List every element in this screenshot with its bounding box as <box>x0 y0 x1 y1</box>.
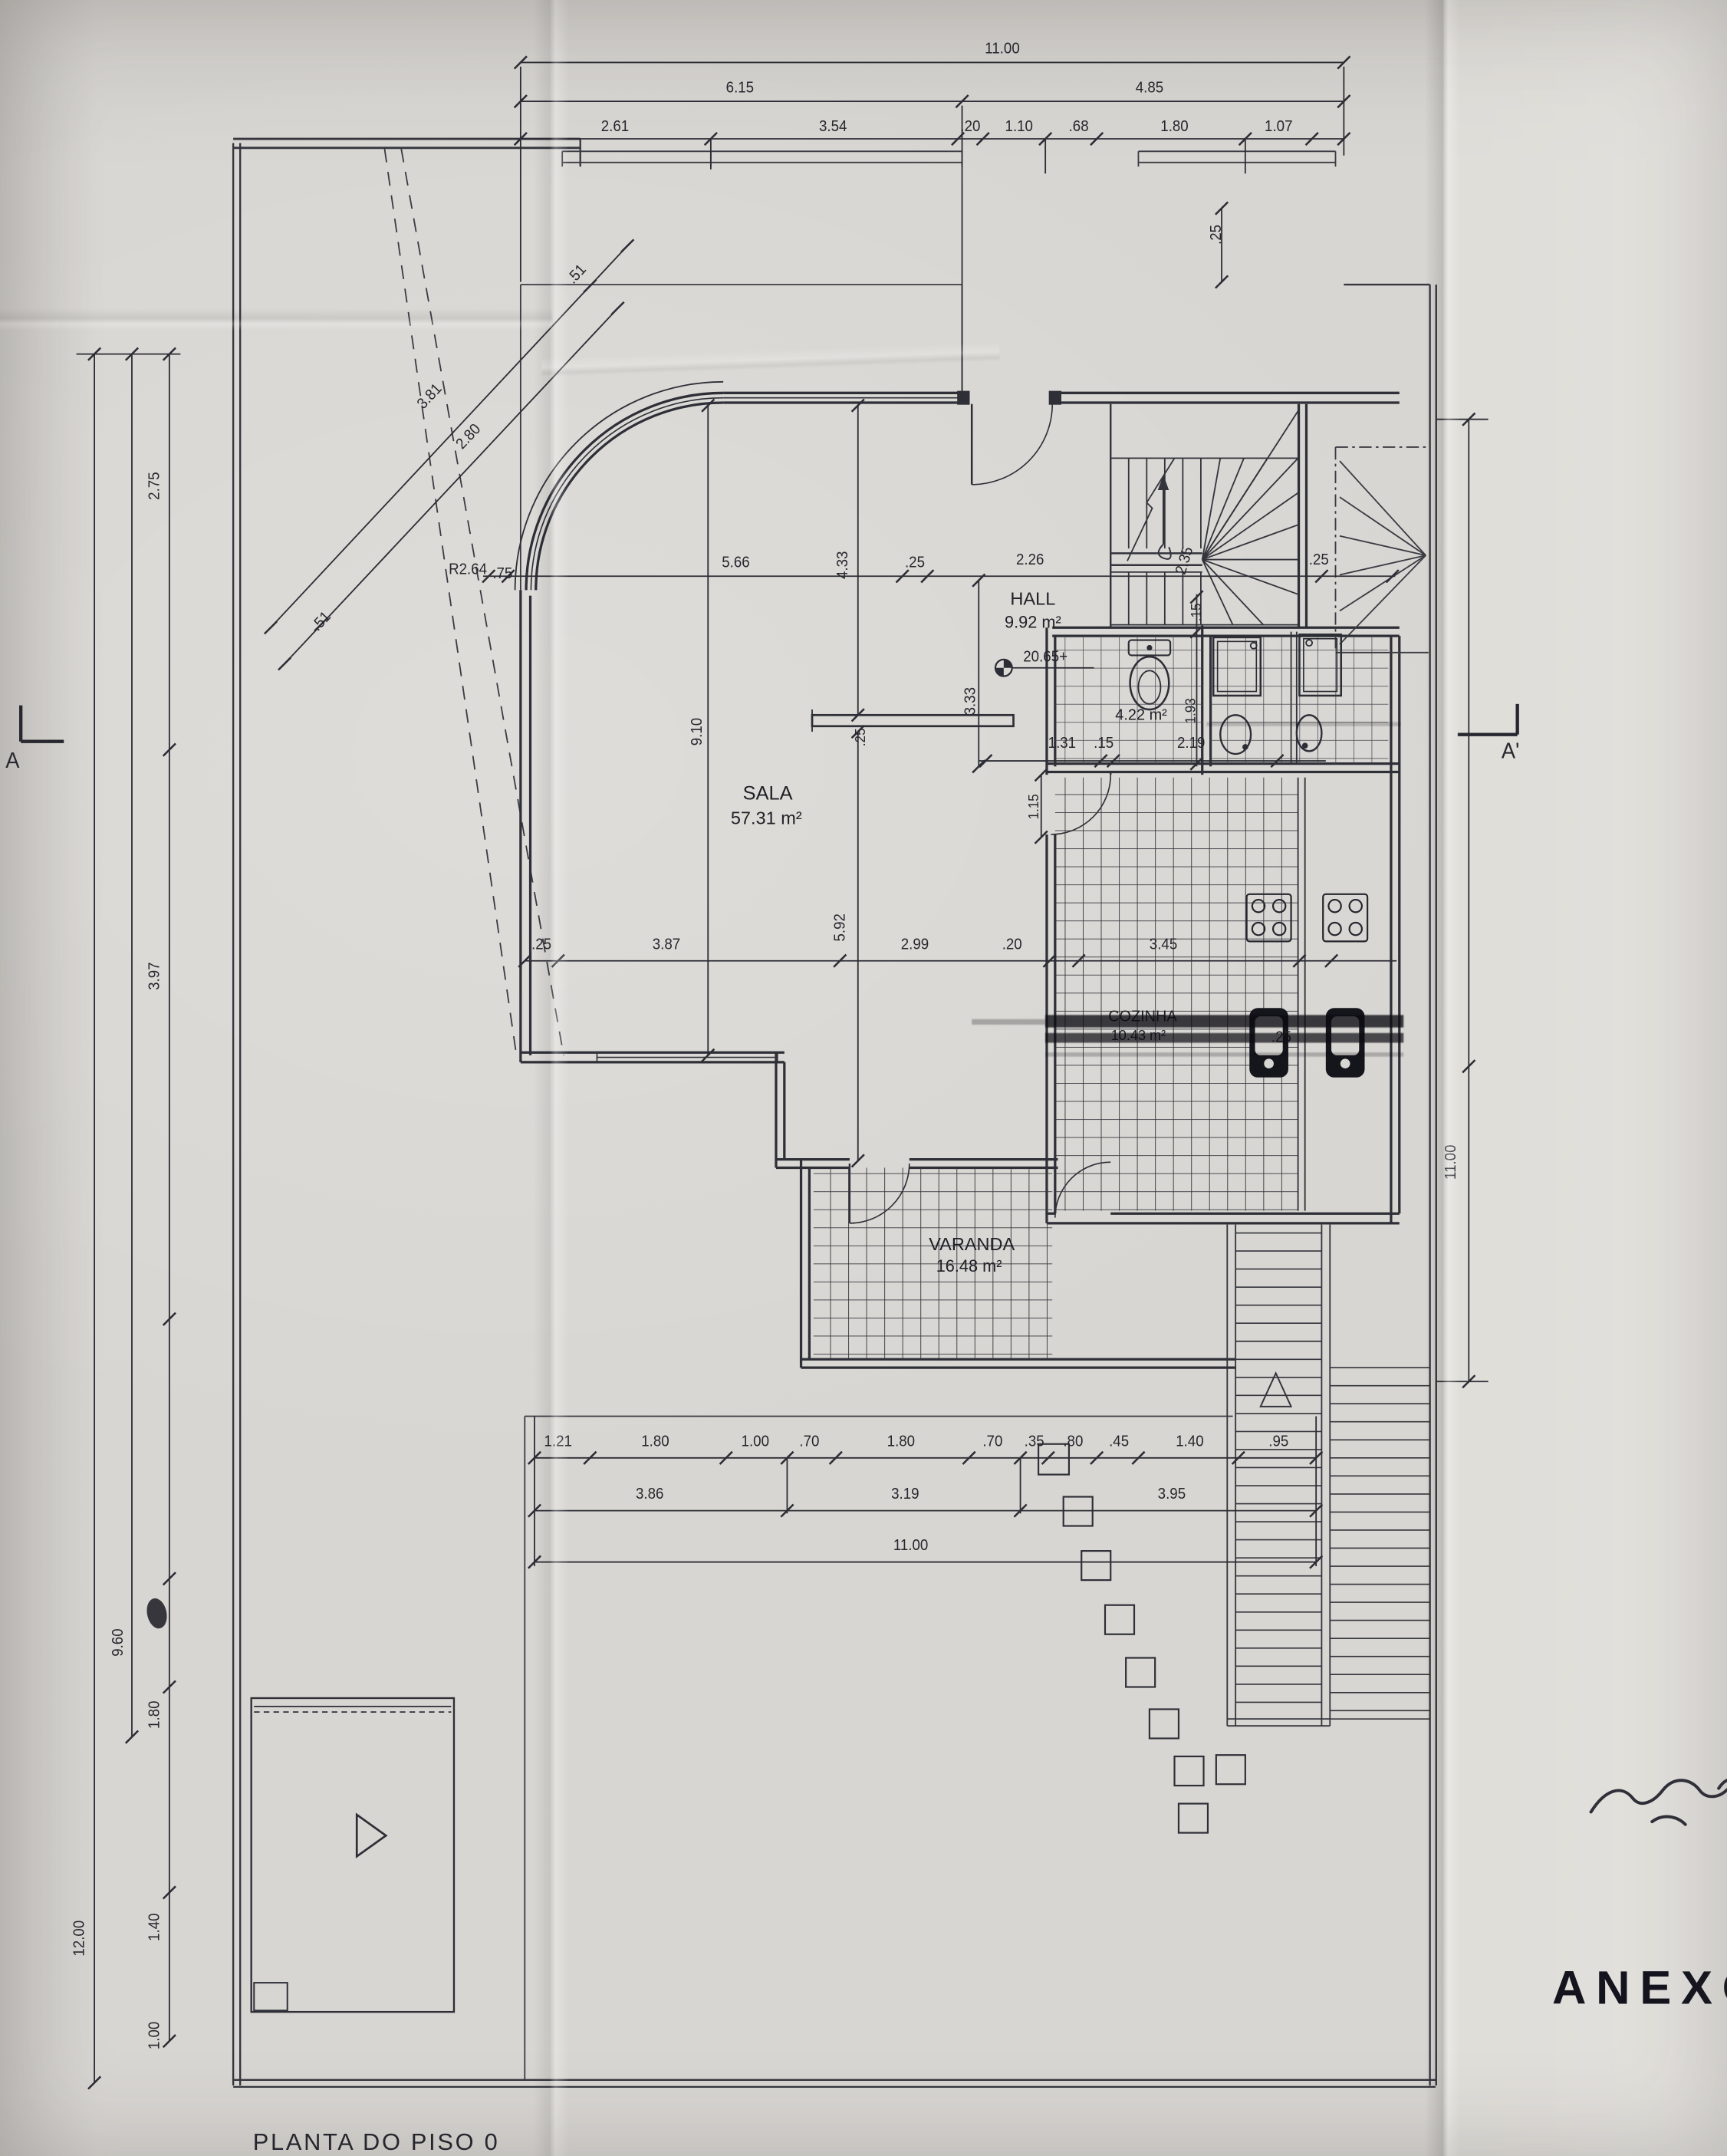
radius-label: R2.64 <box>449 563 487 578</box>
dim-label: 1.15 <box>1028 794 1042 819</box>
dim-label: 1.40 <box>148 1913 163 1940</box>
dim-label: 9.60 <box>112 1628 127 1656</box>
dim-label: 11.00 <box>1445 1144 1460 1179</box>
dim-label: .51 <box>310 610 334 635</box>
dim-label: 4.85 <box>1136 81 1163 97</box>
dim-label: 2.99 <box>901 938 929 953</box>
dim-label: 11.00 <box>893 1539 928 1555</box>
dim-label: .20 <box>1002 938 1022 953</box>
level-value: 20.65+ <box>1023 650 1067 666</box>
dim-label: 9.10 <box>691 718 706 746</box>
section-marker-a-prime: A' <box>1502 742 1519 764</box>
dim-label: 3.19 <box>891 1488 919 1503</box>
dim-label: 5.66 <box>722 556 749 571</box>
dim-label: .25 <box>531 938 551 953</box>
dim-label: .80 <box>1063 1435 1083 1450</box>
dim-label: 1.40 <box>1176 1435 1203 1450</box>
room-area-cozinha: 10.43 m² <box>1111 1030 1166 1044</box>
dim-label: .20 <box>960 120 980 136</box>
dim-label: 1.07 <box>1265 120 1292 136</box>
room-area-wc: 4.22 m² <box>1115 709 1167 724</box>
handwritten-anexo: ANEXO <box>1552 1965 1727 2013</box>
dim-label: 12.00 <box>73 1921 88 1957</box>
dim-label: 3.54 <box>819 120 847 136</box>
room-label-hall: HALL <box>1010 589 1055 607</box>
dim-label: 5.92 <box>834 913 849 941</box>
section-marker-a: A <box>5 751 19 773</box>
dim-label: .70 <box>799 1435 819 1450</box>
dim-label: .35 <box>1025 1435 1044 1450</box>
room-label-sala: SALA <box>743 783 793 802</box>
dim-label: .25 <box>855 728 869 746</box>
dim-label: 1.21 <box>544 1435 572 1450</box>
room-area-varanda: 16.48 m² <box>936 1258 1002 1275</box>
dim-label: 1.80 <box>887 1435 915 1450</box>
dim-label: 1.80 <box>148 1700 163 1728</box>
dim-label: .95 <box>1268 1435 1288 1450</box>
dim-label: .25 <box>905 556 925 571</box>
room-area-hall: 9.92 m² <box>1005 614 1061 630</box>
dim-label: 1.10 <box>1005 120 1033 136</box>
dim-label: 2.75 <box>148 472 163 499</box>
dim-label: 3.33 <box>964 687 979 715</box>
dim-label: 2.61 <box>601 120 629 136</box>
dim-label: 2.19 <box>1177 736 1205 752</box>
dim-label: .25 <box>1309 553 1329 568</box>
dim-label: 3.97 <box>148 962 163 989</box>
dim-label: .15 <box>1094 736 1114 752</box>
room-area-sala: 57.31 m² <box>731 808 802 827</box>
scanned-floor-plan-sheet: 11.006.154.852.613.54.201.10.681.801.071… <box>0 0 1727 2156</box>
dim-label: 2.26 <box>1016 553 1044 568</box>
dim-label: 11.00 <box>985 42 1019 58</box>
dim-label: .25 <box>1271 1031 1291 1046</box>
dim-label: 1.31 <box>1048 736 1076 752</box>
dim-label: .25 <box>1210 225 1225 245</box>
dim-label: 2.35 <box>1174 545 1197 577</box>
dim-label: 1.00 <box>148 2022 163 2049</box>
dim-label: 1.80 <box>641 1435 669 1450</box>
dim-label: .15 <box>1191 604 1205 622</box>
dim-label: 6.15 <box>726 81 754 97</box>
dim-label: .70 <box>982 1435 1002 1450</box>
dim-label: 3.86 <box>636 1488 663 1503</box>
dim-label: .45 <box>1109 1435 1129 1450</box>
dim-label: 3.95 <box>1158 1488 1186 1503</box>
dim-label: 1.93 <box>1186 698 1199 723</box>
dim-label: .75 <box>492 568 512 583</box>
dim-label: 4.33 <box>837 551 852 579</box>
dim-label: 1.80 <box>1160 120 1188 136</box>
dim-label: .51 <box>565 262 590 288</box>
dim-label: 3.87 <box>653 938 680 953</box>
dim-label: .68 <box>1069 120 1089 136</box>
dim-label: 3.45 <box>1150 938 1177 953</box>
text-labels-layer: 11.006.154.852.613.54.201.10.681.801.071… <box>0 0 1727 2156</box>
dim-label: 1.00 <box>742 1435 769 1450</box>
dim-label: 2.80 <box>454 422 484 453</box>
room-label-varanda: VARANDA <box>929 1235 1015 1253</box>
dim-label: 3.81 <box>415 382 445 413</box>
room-label-cozinha: COZINHA <box>1108 1010 1177 1025</box>
plan-title: PLANTA DO PISO 0 <box>253 2131 500 2154</box>
